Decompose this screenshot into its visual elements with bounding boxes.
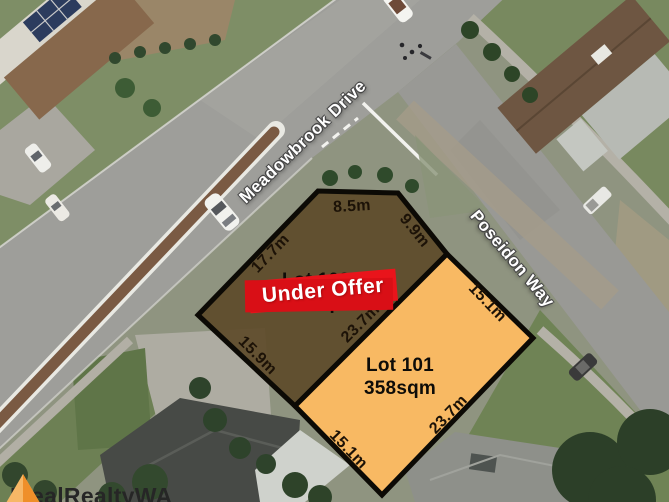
aerial-photo — [0, 0, 669, 502]
listing-map-image: Meadowbrook Drive Poseidon Way 8.5m 9.9m… — [0, 0, 669, 502]
lot-101-label: Lot 101 358sqm — [364, 354, 436, 400]
lot-101-area: 358sqm — [364, 377, 436, 400]
watermark-logo-icon — [6, 474, 42, 502]
lot-101-name: Lot 101 — [364, 354, 436, 377]
measurement-sold-top: 8.5m — [333, 197, 372, 217]
watermark: IdealRealtyWA — [6, 474, 172, 502]
